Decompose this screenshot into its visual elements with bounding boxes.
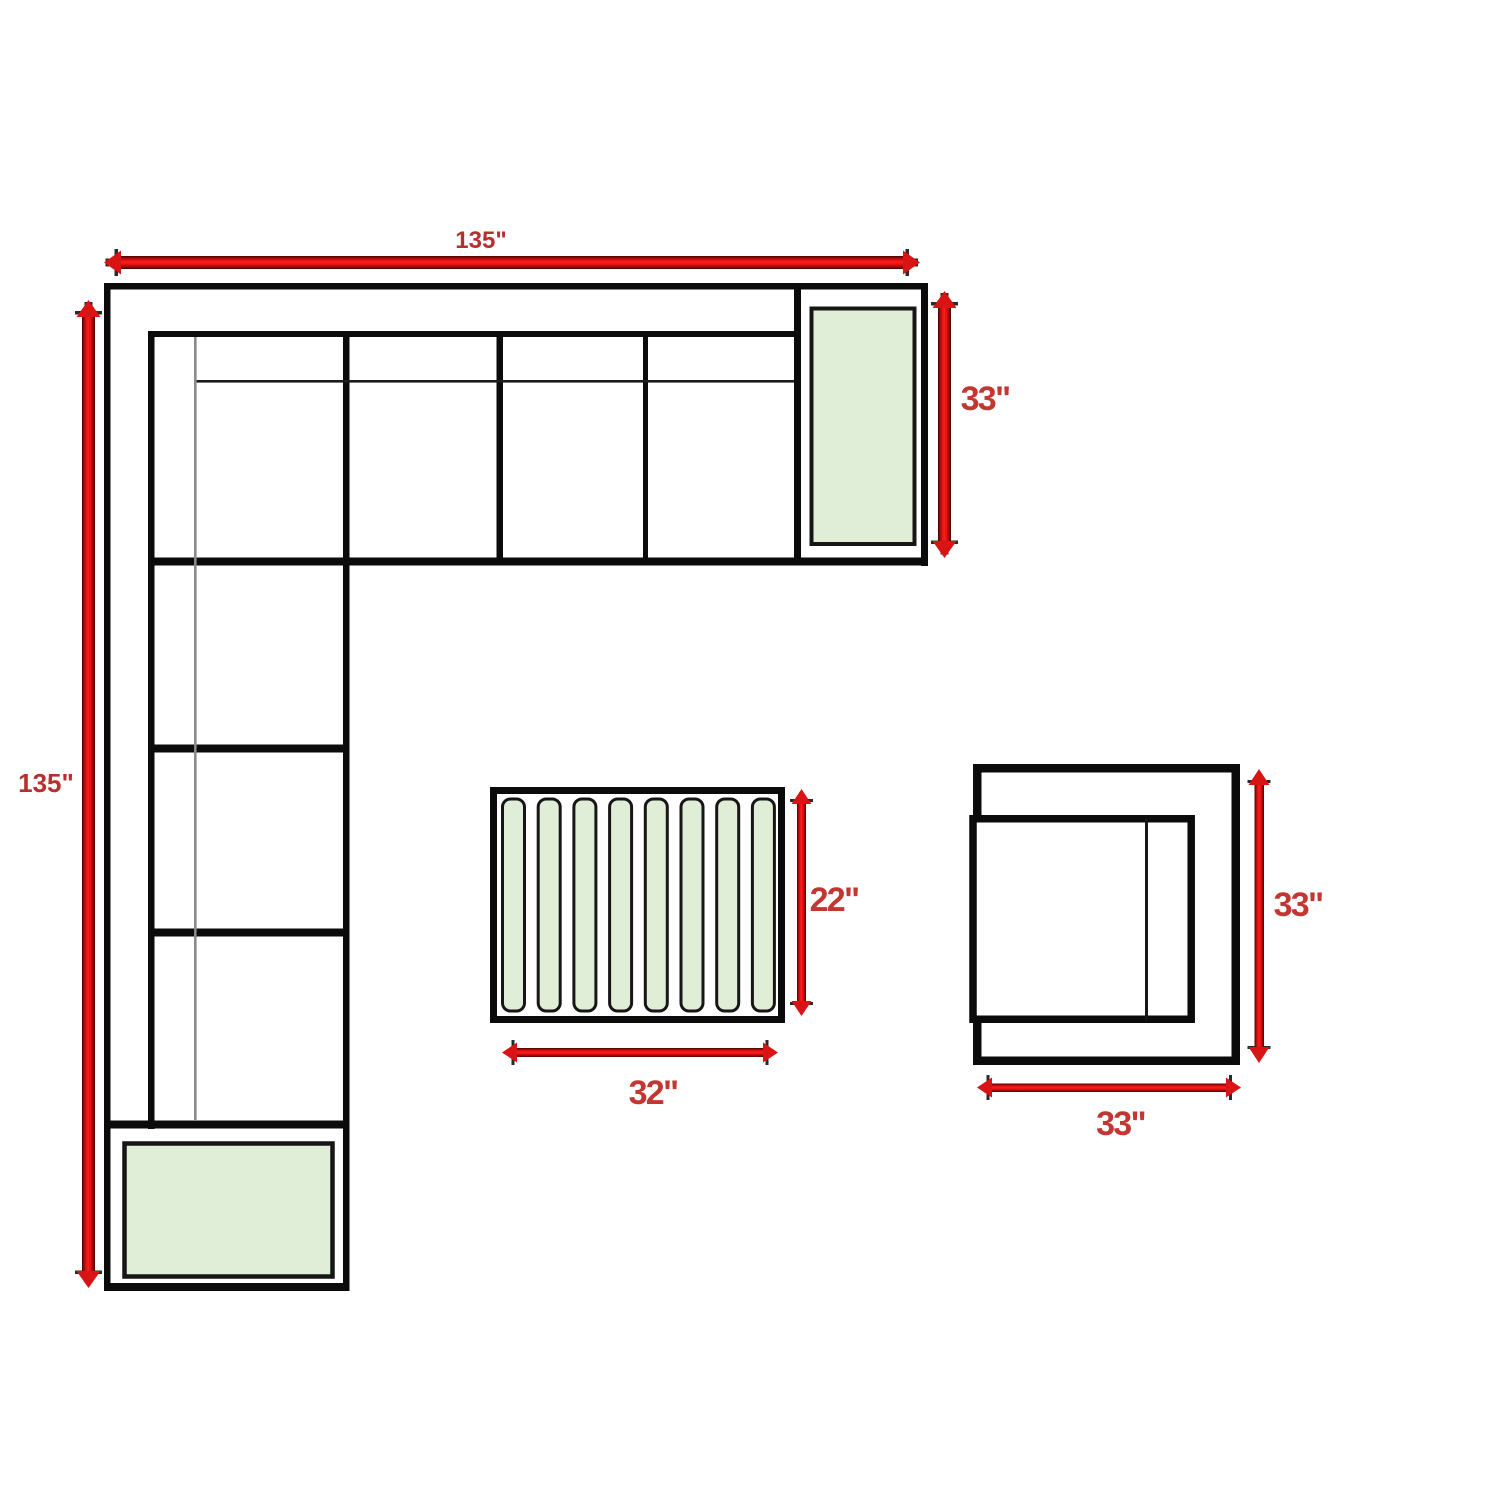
svg-text:33": 33" [1274, 886, 1323, 924]
svg-text:135": 135" [18, 768, 74, 798]
svg-text:32": 32" [629, 1074, 678, 1112]
svg-text:22": 22" [810, 881, 859, 919]
svg-text:33": 33" [1096, 1105, 1145, 1143]
svg-text:135": 135" [455, 227, 506, 254]
svg-text:33": 33" [961, 380, 1010, 418]
